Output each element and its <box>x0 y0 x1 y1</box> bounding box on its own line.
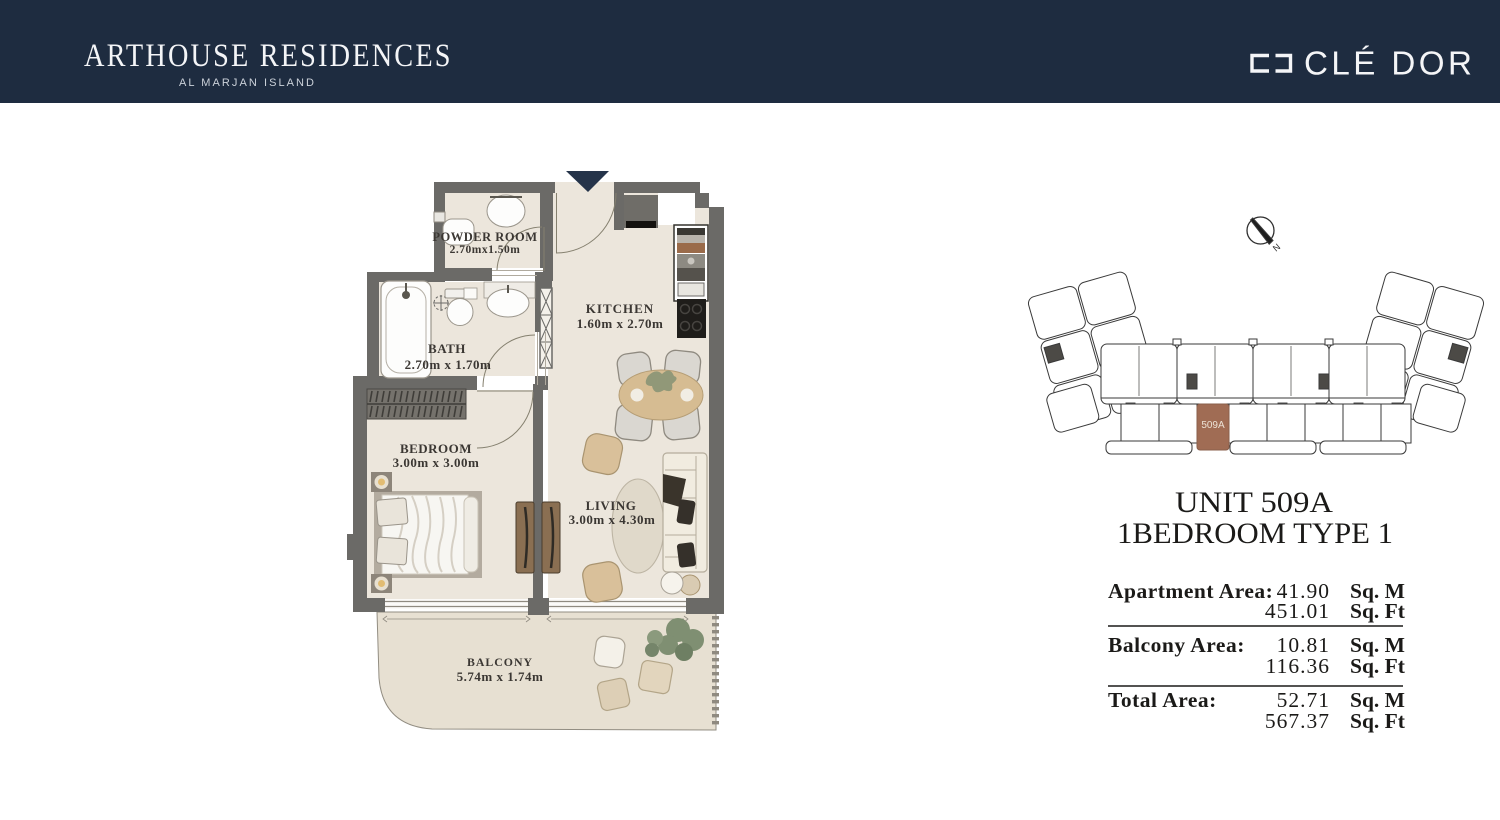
svg-text:451.01: 451.01 <box>1265 599 1330 623</box>
svg-text:POWDER ROOM: POWDER ROOM <box>432 230 537 244</box>
svg-text:Sq. Ft: Sq. Ft <box>1350 709 1406 733</box>
svg-text:567.37: 567.37 <box>1265 709 1330 733</box>
svg-text:5.74m x 1.74m: 5.74m x 1.74m <box>457 669 544 684</box>
svg-text:Sq. Ft: Sq. Ft <box>1350 599 1406 623</box>
svg-text:CLÉ DOR: CLÉ DOR <box>1304 46 1475 83</box>
svg-text:BEDROOM: BEDROOM <box>400 441 472 456</box>
svg-text:ARTHOUSE RESIDENCES: ARTHOUSE RESIDENCES <box>84 37 453 73</box>
svg-text:3.00m x 4.30m: 3.00m x 4.30m <box>569 512 656 527</box>
svg-text:Total Area:: Total Area: <box>1108 688 1217 712</box>
svg-text:116.36: 116.36 <box>1266 654 1330 678</box>
svg-text:BALCONY: BALCONY <box>467 655 533 669</box>
svg-text:1.60m x 2.70m: 1.60m x 2.70m <box>577 316 664 331</box>
svg-text:1BEDROOM TYPE 1: 1BEDROOM TYPE 1 <box>1117 517 1393 550</box>
svg-text:BATH: BATH <box>428 341 466 356</box>
svg-text:2.70mx1.50m: 2.70mx1.50m <box>450 244 521 256</box>
svg-text:LIVING: LIVING <box>586 498 637 513</box>
svg-text:Sq. Ft: Sq. Ft <box>1350 654 1406 678</box>
svg-text:2.70m x 1.70m: 2.70m x 1.70m <box>405 357 492 372</box>
svg-text:Apartment Area:: Apartment Area: <box>1108 579 1273 603</box>
svg-text:KITCHEN: KITCHEN <box>586 301 654 316</box>
svg-text:3.00m x 3.00m: 3.00m x 3.00m <box>393 455 480 470</box>
svg-text:509A: 509A <box>1201 420 1225 431</box>
svg-text:Balcony Area:: Balcony Area: <box>1108 633 1245 657</box>
svg-text:UNIT 509A: UNIT 509A <box>1175 486 1333 519</box>
